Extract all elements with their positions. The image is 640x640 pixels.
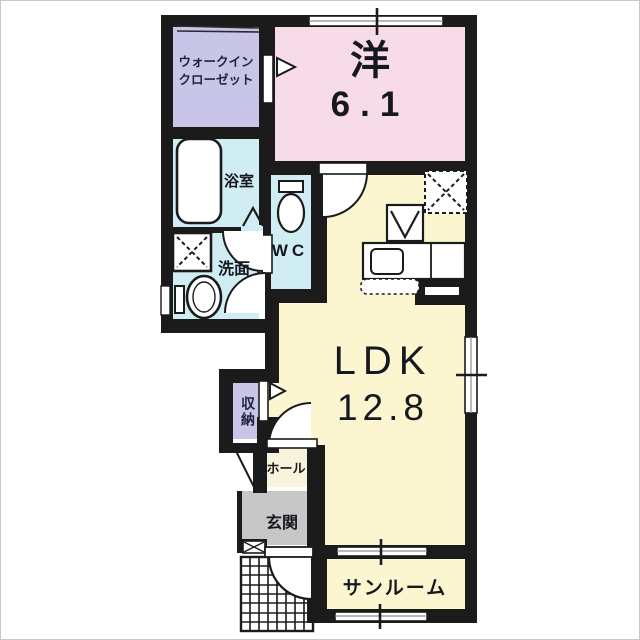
wall — [259, 289, 327, 303]
washroom-label: 洗面 — [206, 255, 262, 279]
exterior-slant-line — [236, 451, 255, 489]
entrance-door — [265, 547, 313, 599]
floorplan: ウォークインクローゼット 洋 6.1 浴室 洗面 WC LDK 12.8 収納 … — [0, 0, 640, 640]
wall — [219, 369, 233, 453]
kitchen-sink — [387, 205, 423, 241]
ldk-label: LDK 12.8 — [303, 341, 463, 426]
door-leaf — [265, 547, 313, 557]
toilet-label: WC — [269, 241, 311, 261]
entrance-label: 玄関 — [251, 509, 313, 533]
toilet — [278, 181, 304, 232]
ldk-area — [325, 445, 465, 545]
bathroom-label: 浴室 — [215, 170, 263, 191]
counter-overhang — [361, 279, 419, 294]
door-leaf — [267, 439, 317, 448]
entrance-step-box — [243, 541, 265, 553]
wall — [265, 301, 279, 375]
window-washroom-left — [161, 286, 170, 315]
refrigerator-space — [425, 171, 467, 213]
storage-label: 収納 — [234, 388, 258, 436]
wall — [161, 127, 273, 139]
western-room-label: 洋 6.1 — [285, 41, 455, 122]
storage-door-leaf — [259, 381, 268, 421]
sunroom-label: サンルーム — [325, 573, 465, 600]
wall — [465, 15, 477, 623]
wall — [307, 445, 325, 559]
kitchen-pass-slit — [425, 287, 459, 295]
wall — [237, 491, 242, 541]
walk-in-closet-label: ウォークインクローゼット — [172, 53, 260, 89]
wall — [161, 319, 275, 333]
door-leaf — [319, 163, 367, 174]
hall-label: ホール — [263, 458, 309, 477]
closet-door-leaf — [263, 55, 273, 103]
